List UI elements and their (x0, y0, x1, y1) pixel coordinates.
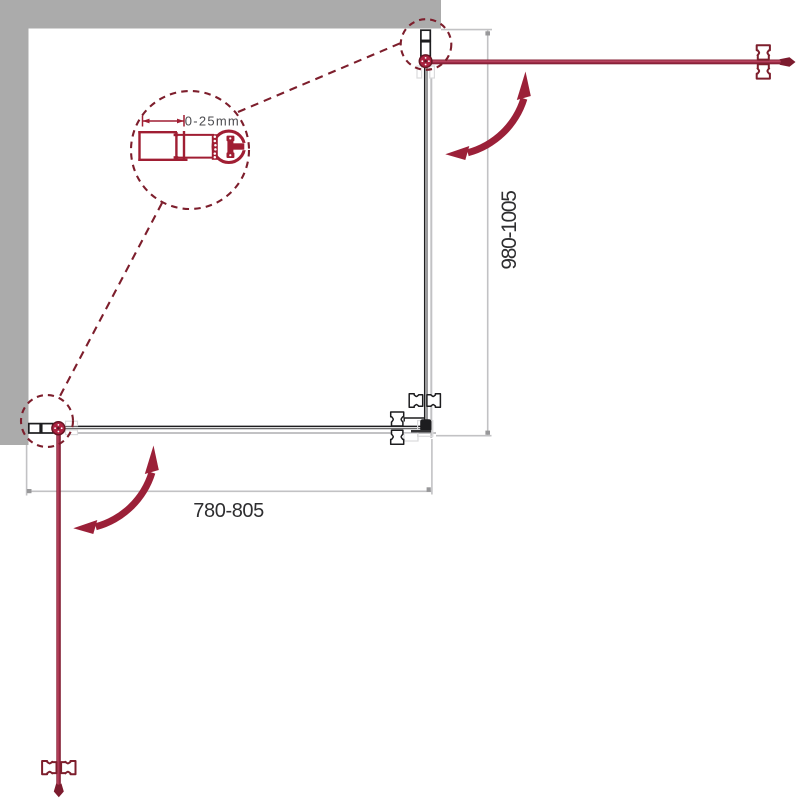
svg-text:980-1005: 980-1005 (498, 191, 521, 270)
svg-text:780-805: 780-805 (193, 500, 264, 522)
svg-text:0-25mm: 0-25mm (185, 114, 240, 129)
